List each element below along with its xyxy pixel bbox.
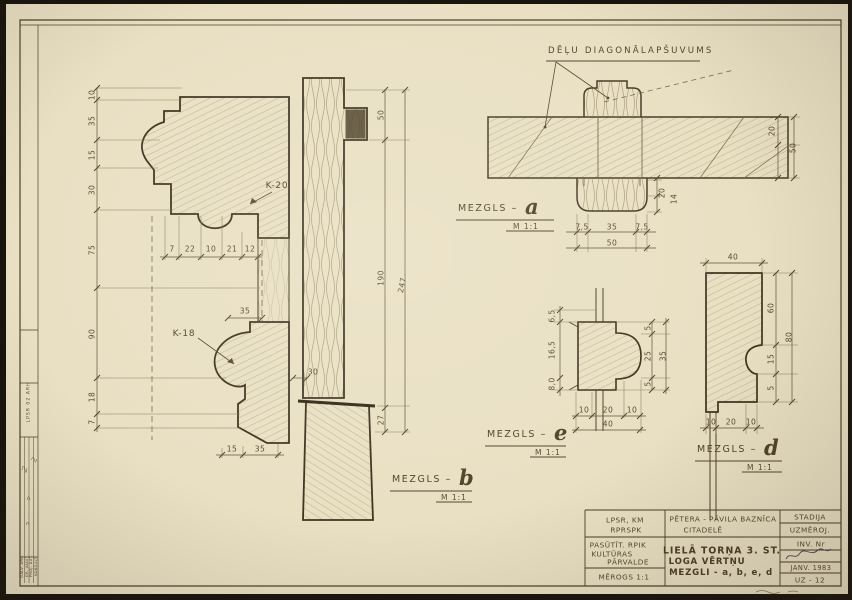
detail-b-drawing <box>94 78 410 520</box>
drawing-canvas <box>0 0 852 600</box>
titleblock-grid <box>585 510 841 594</box>
drawing-sheet: 1035153075901877221021125019024727353015… <box>6 4 848 594</box>
detail-e-drawing <box>554 288 670 433</box>
photo-background: 1035153075901877221021125019024727353015… <box>0 0 852 600</box>
detail-d-drawing <box>700 258 798 520</box>
detail-a-drawing <box>488 61 800 252</box>
